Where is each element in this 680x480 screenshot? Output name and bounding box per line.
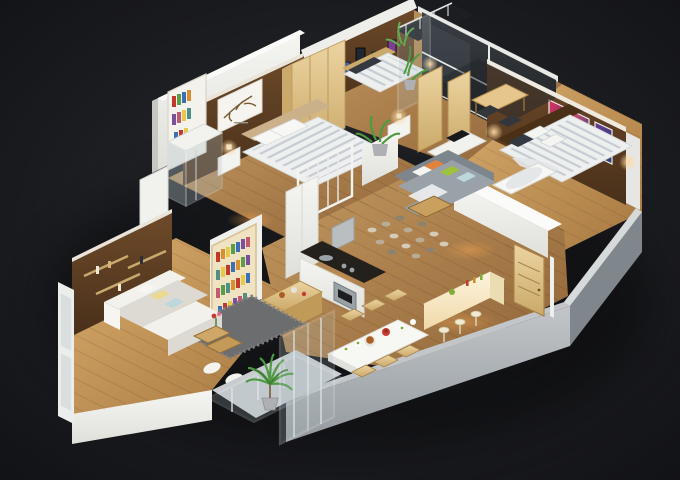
floor-plan-render [0, 0, 680, 480]
floor-plan-svg [0, 0, 680, 480]
